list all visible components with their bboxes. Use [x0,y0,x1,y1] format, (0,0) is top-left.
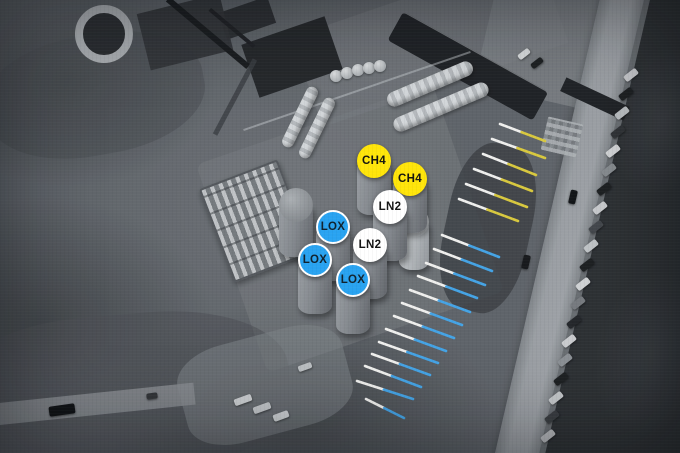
pointer-line-blue [431,314,462,325]
pointer-line-blue [392,376,421,387]
tank-label-ln2-2: LN2 [353,228,387,262]
pointer-line-blue [372,354,400,364]
pointer-line-blue [384,390,413,399]
fence-line [213,58,257,135]
pallet-stacks [541,116,584,157]
pointer-line-blue [400,364,430,375]
sphere-tank [374,60,386,72]
pointer-line-blue [379,342,407,352]
pointer-line-blue [423,327,454,338]
tank-label-ch4-2: CH4 [393,162,427,196]
storage-tank-cap [279,188,313,222]
tank-label-ch4-1: CH4 [357,144,391,178]
pointer-line-blue [415,340,446,351]
aerial-photo: CH4CH4LN2LN2LOXLOXLOX [0,0,680,453]
pointer-line-yellow [500,124,522,132]
pointer-line-blue [407,352,438,363]
parked-car [521,254,531,269]
pointer-line-blue [357,381,384,390]
tank-label-lox-3: LOX [336,263,370,297]
pointer-line-blue [384,408,404,418]
tank-label-lox-2: LOX [298,243,332,277]
pointer-line-blue [366,399,384,408]
pointer-line-yellow [522,132,545,141]
tank-label-ln2-1: LN2 [373,190,407,224]
pointer-line-blue [365,366,392,376]
tank-label-lox-1: LOX [316,210,350,244]
ring-structure [75,5,133,63]
pointer-line-blue [386,329,415,340]
